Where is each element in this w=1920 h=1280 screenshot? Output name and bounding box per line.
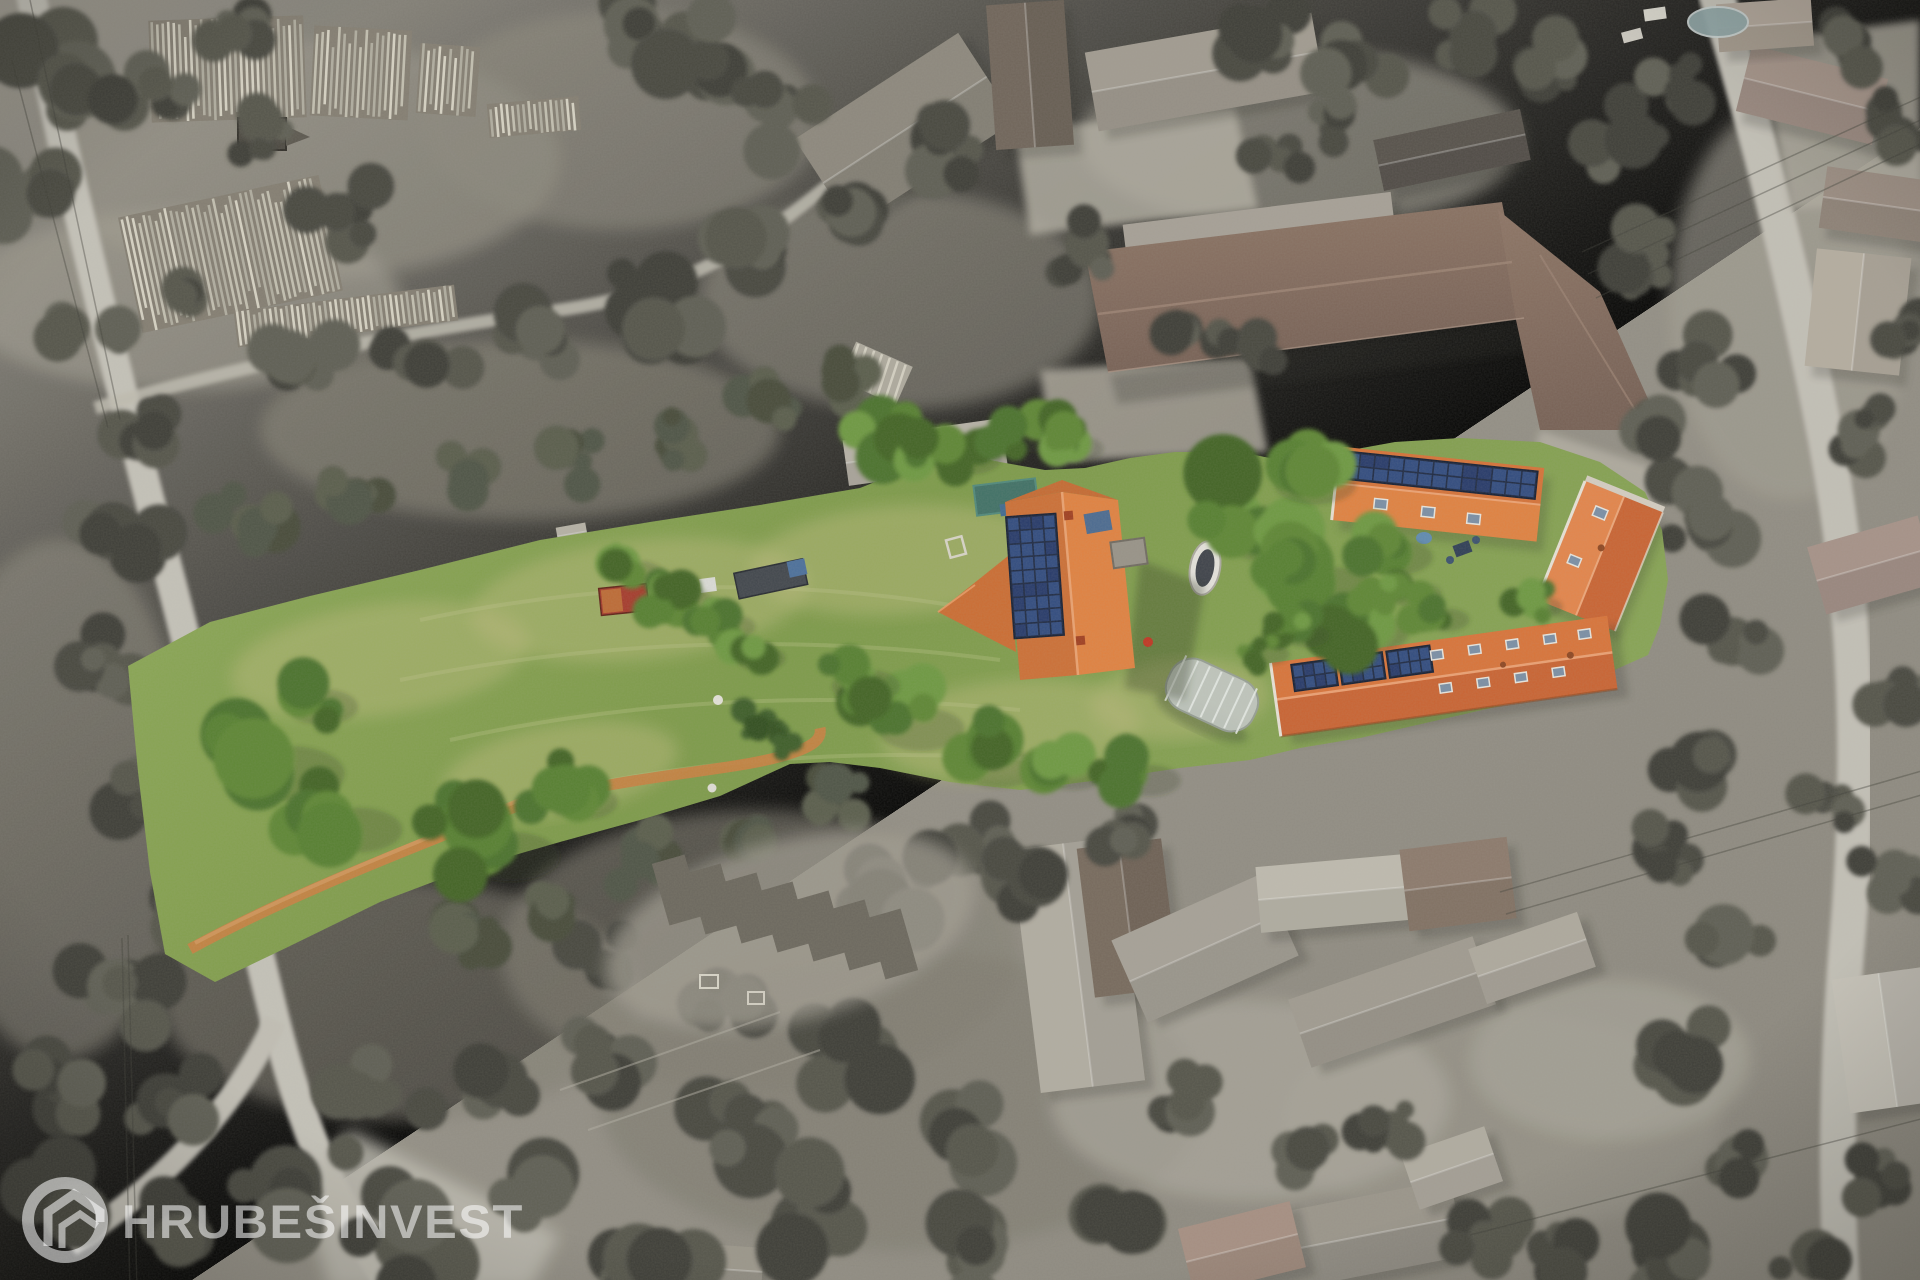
aerial-photo: HRUBEŠINVEST (0, 0, 1920, 1280)
aerial-photo-scene: HRUBEŠINVEST (0, 0, 1920, 1280)
watermark-brand-text: HRUBEŠINVEST (122, 1195, 524, 1248)
vignette (0, 0, 1920, 1280)
